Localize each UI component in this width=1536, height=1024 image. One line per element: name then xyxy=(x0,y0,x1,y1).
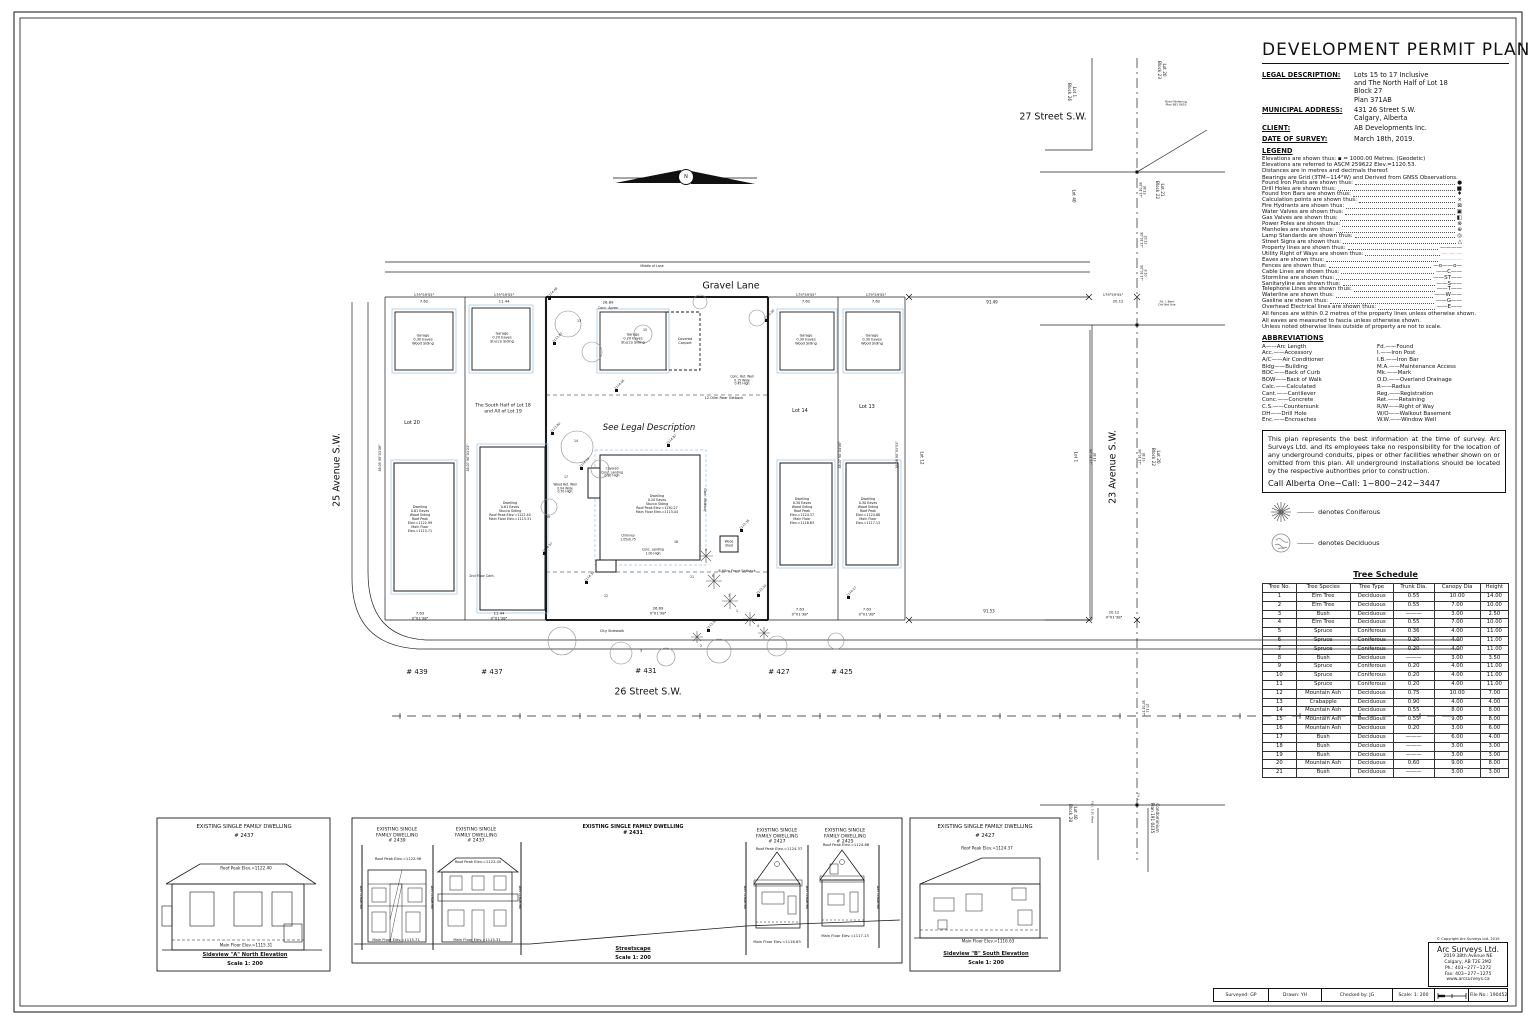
plan-label: 1113.82 xyxy=(550,422,562,434)
tree-schedule-cell: 9.00 xyxy=(1434,760,1480,769)
tree-schedule-cell: 0.20 xyxy=(1393,645,1434,654)
tree-schedule-cell: Bush xyxy=(1296,610,1350,619)
tree-schedule-cell: 12 xyxy=(1263,689,1297,698)
tree-schedule-cell: 0.55 xyxy=(1393,601,1434,610)
tree-schedule-heading: Tree Schedule xyxy=(1262,569,1509,579)
tree-schedule-cell: Mountain Ash xyxy=(1296,707,1350,716)
plan-label: 1114.57 xyxy=(542,542,554,554)
tree-schedule-cell: 4 xyxy=(1263,619,1297,628)
plan-label: Main Floor Elev.=1115.71 xyxy=(372,938,419,942)
tree-schedule-cell: 9 xyxy=(1263,663,1297,672)
tree-schedule-cell: Deciduous xyxy=(1350,725,1393,734)
tree-schedule-cell: 3.00 xyxy=(1480,751,1508,760)
plan-label: Roof Peak Elev.=1122.40 xyxy=(455,860,501,864)
plan-label: 1 xyxy=(736,610,738,614)
tree-schedule-column-header: Tree No. xyxy=(1263,584,1297,593)
legend-note: Unless noted otherwise lines outside of … xyxy=(1262,324,1509,330)
company-name: Arc Surveys Ltd. xyxy=(1429,945,1507,954)
tree-schedule-cell: Coniferous xyxy=(1350,636,1393,645)
plan-label: See Legal Description xyxy=(603,423,696,433)
plan-label: Roof Peak Elev.=1122.40 xyxy=(220,867,271,872)
date-of-survey-label: DATE OF SURVEY: xyxy=(1262,135,1354,143)
tree-schedule-cell: 4.00 xyxy=(1434,636,1480,645)
tree-schedule-cell: Deciduous xyxy=(1350,689,1393,698)
tree-schedule-column-header: Trunk Dia. xyxy=(1393,584,1434,593)
tree-schedule-cell: 3.00 xyxy=(1434,654,1480,663)
plan-label: Lot 20 Block 22 xyxy=(1151,448,1161,466)
plan-label: # 431 xyxy=(635,667,656,675)
plan-label: 8.10 90°01'17" xyxy=(1139,265,1146,281)
plan-label: 1114.87 xyxy=(666,434,678,446)
plan-label: EXISTING SINGLE FAMILY DWELLING # 2437 xyxy=(455,828,497,845)
legend-notes: All fences are within 0.2 metres of the … xyxy=(1262,311,1509,330)
tree-schedule-column-header: Tree Type xyxy=(1350,584,1393,593)
tree-schedule-cell: 3.00 xyxy=(1434,742,1480,751)
tree-schedule-cell: 11.00 xyxy=(1480,663,1508,672)
municipal-address-value: 431 26 Street S.W. Calgary, Alberta xyxy=(1354,106,1415,122)
plan-label: Main Floor Elev.=1115.31 xyxy=(453,938,500,942)
tree-schedule-cell: Bush xyxy=(1296,654,1350,663)
plan-label: 38.07 90°03'23" xyxy=(467,444,471,471)
plan-label: 38.07 90°04'06" xyxy=(839,441,843,468)
plan-label: Main Floor Elev.=1116.63 xyxy=(753,940,800,944)
tree-schedule-row: 21BushDeciduous———3.003.00 xyxy=(1263,769,1509,778)
tree-schedule-cell: 7.00 xyxy=(1434,619,1480,628)
plan-label: 7.62 xyxy=(420,300,428,305)
disclaimer-box: This plan represents the best informatio… xyxy=(1262,430,1506,493)
plan-label: Chimney 1.05x0.75 xyxy=(620,534,636,541)
plan-label: 7.63 0°01'38" xyxy=(859,607,876,616)
tree-schedule-cell: 3.00 xyxy=(1434,751,1480,760)
plan-label: # 437 xyxy=(481,668,502,676)
plan-label: 7 xyxy=(728,595,730,599)
file-number-cell: File No.: 190452 xyxy=(1469,989,1508,1001)
tree-schedule-row: 12Mountain AshDeciduous0.7510.007.00 xyxy=(1263,689,1509,698)
scale-bar-icon xyxy=(1437,991,1467,999)
plan-label: 38.05 90°03'06" xyxy=(379,444,383,471)
tree-schedule-cell: 3.00 xyxy=(1434,725,1480,734)
plan-label: 179°59'55" xyxy=(414,293,434,297)
plan-label: Main Floor Elev.=1115.31 xyxy=(220,944,273,949)
tree-schedule-cell: 7.00 xyxy=(1434,601,1480,610)
tree-schedule-cell: 21 xyxy=(1263,769,1297,778)
plan-label: EXISTING SINGLE FAMILY DWELLING # 2431 xyxy=(582,824,683,836)
elevation-a-title: EXISTING SINGLE FAMILY DWELLING xyxy=(196,824,291,830)
tree-schedule-table: Tree No.Tree SpeciesTree TypeTrunk Dia.C… xyxy=(1262,583,1509,778)
plan-label: Garage 0.30 Eaves Wood Siding xyxy=(795,334,817,347)
footer-bar: Surveyed: GP Drawn: YH Checked by: JG Sc… xyxy=(1213,988,1508,1002)
tree-schedule-cell: 4.00 xyxy=(1480,733,1508,742)
tree-schedule-row: 10SpruceConiferous0.204.0011.00 xyxy=(1263,672,1509,681)
plan-label: 21 xyxy=(690,576,694,580)
scale-cell: Scale: 1: 200 xyxy=(1393,989,1435,1001)
plan-label: Conc. Apron xyxy=(598,307,618,311)
plan-label: Garage 0.20 Eaves Stucco Siding xyxy=(621,333,645,346)
plan-label: 91.53 xyxy=(983,610,994,615)
plan-label: # 425 xyxy=(831,668,852,676)
plan-label: 7.62 xyxy=(872,300,880,305)
tree-schedule-cell: 0.55 xyxy=(1393,716,1434,725)
tree-schedule-cell: 6 xyxy=(1263,636,1297,645)
date-of-survey-row: DATE OF SURVEY: March 18th, 2019. xyxy=(1262,135,1509,143)
plan-label: 7.62 xyxy=(802,300,810,305)
property-line-label: PROPERTY LINE xyxy=(360,885,364,908)
plan-label: 3 xyxy=(640,650,642,654)
company-website: www.arcsurveys.ca xyxy=(1429,977,1507,983)
abbreviation-entry: R/W——Right of Way xyxy=(1377,404,1492,411)
plan-label: 1114.09 xyxy=(579,457,591,469)
plan-label: 27 Street S.W. xyxy=(1019,111,1086,122)
tree-schedule-cell: 3.50 xyxy=(1480,654,1508,663)
tree-schedule-cell: Coniferous xyxy=(1350,663,1393,672)
tree-schedule-cell: 18 xyxy=(1263,742,1297,751)
plan-label: 1114.06 xyxy=(614,379,626,391)
client-row: CLIENT: AB Developments Inc. xyxy=(1262,124,1509,132)
tree-schedule-cell: ——— xyxy=(1393,733,1434,742)
tree-schedule-row: 4Elm TreeDeciduous0.557.0010.00 xyxy=(1263,619,1509,628)
plan-label: Lot 1 xyxy=(1073,452,1078,462)
tree-schedule-cell: 4.00 xyxy=(1434,698,1480,707)
plan-label: Lot 40 Block 28 xyxy=(1068,804,1078,822)
legend-leader xyxy=(1355,237,1456,238)
plan-label: Roof Peak Elev.=1122.96 xyxy=(375,857,421,861)
legend-leader xyxy=(1342,226,1455,227)
plan-label: 1115.53 xyxy=(756,584,768,596)
client-value: AB Developments Inc. xyxy=(1354,124,1427,132)
tree-schedule-cell: ——— xyxy=(1393,751,1434,760)
tree-schedule-cell: Mountain Ash xyxy=(1296,689,1350,698)
tree-schedule-cell: Deciduous xyxy=(1350,733,1393,742)
legend-leader xyxy=(1326,261,1438,262)
tree-schedule-cell: 0.55 xyxy=(1393,707,1434,716)
tree-schedule-cell: Deciduous xyxy=(1350,716,1393,725)
drawn-cell: Drawn: YH xyxy=(1269,989,1322,1001)
abbreviations-heading: ABBREVIATIONS xyxy=(1262,334,1509,342)
legend-leader xyxy=(1355,184,1455,185)
deciduous-legend: ——— denotes Deciduous xyxy=(1270,531,1509,555)
tree-schedule-cell: 4.00 xyxy=(1434,681,1480,690)
legend-leader xyxy=(1329,267,1432,268)
tree-schedule-cell: 3.00 xyxy=(1480,769,1508,778)
plan-label: Lot 20 Block 23 xyxy=(1157,61,1167,79)
checked-cell: Checked by: JG xyxy=(1322,989,1393,1001)
plan-label: 11.44 xyxy=(499,300,510,305)
tree-schedule-cell: 8.00 xyxy=(1480,760,1508,769)
tree-schedule-row: 8BushDeciduous———3.003.50 xyxy=(1263,654,1509,663)
abbreviation-entry: I.B.——Iron Bar xyxy=(1377,357,1492,364)
tree-schedule-cell: Bush xyxy=(1296,742,1350,751)
plan-label: 5 xyxy=(705,549,707,553)
tree-schedule-cell: Spruce xyxy=(1296,672,1350,681)
scale-bar xyxy=(1435,989,1469,1001)
tree-schedule-cell: 0.36 xyxy=(1393,628,1434,637)
tree-schedule-cell: Deciduous xyxy=(1350,592,1393,601)
plan-label: 38.13 90°01'17" xyxy=(1138,182,1145,198)
abbreviations: A——Arc LengthAcc.——AccessoryA/C——Air Con… xyxy=(1262,344,1492,424)
tree-schedule-cell: 2.50 xyxy=(1480,610,1508,619)
tree-schedule-cell: 0.75 xyxy=(1393,689,1434,698)
plan-label: Conc. Ret. Wall 0.15 Wide 0.45 High xyxy=(730,375,753,386)
tree-schedule-cell: Deciduous xyxy=(1350,760,1393,769)
plan-label: 20.12 90°01'17" xyxy=(1139,232,1146,248)
north-arrow-label: N xyxy=(684,174,688,180)
plan-label: Conc. Walkway xyxy=(702,488,706,511)
plan-label: Garage 0.20 Eaves Stucco Siding xyxy=(490,332,514,345)
abbreviation-entry: Cant.——Cantilever xyxy=(1262,391,1377,398)
abbreviation-entry: Enc.——Encroaches xyxy=(1262,417,1377,424)
deciduous-legend-label: denotes Deciduous xyxy=(1318,539,1379,547)
plan-label: Dwelling 0.30 Eaves Wood Siding Roof Pea… xyxy=(790,498,814,526)
abbreviation-entry: Fd.——Found xyxy=(1377,344,1492,351)
property-line-label: PROPERTY LINE xyxy=(744,885,748,908)
tree-schedule-cell: Mountain Ash xyxy=(1296,716,1350,725)
legend-leader xyxy=(1343,285,1435,286)
plan-label: 19 xyxy=(546,516,550,520)
plan-label: # 439 xyxy=(406,668,427,676)
tree-schedule-cell: 11.00 xyxy=(1480,628,1508,637)
plan-label: Lot 20 xyxy=(404,420,420,426)
plan-label: 179°59'55" xyxy=(1103,293,1123,297)
plan-label: Lot 12 xyxy=(919,451,924,464)
abbreviation-entry: O.D.——Overland Drainage xyxy=(1377,377,1492,384)
tree-schedule-row: 16Mountain AshDeciduous0.203.006.00 xyxy=(1263,725,1509,734)
property-line-label: PROPERTY LINE xyxy=(877,885,881,908)
tree-schedule-cell: 8.00 xyxy=(1480,716,1508,725)
legend-leader xyxy=(1341,273,1434,274)
abbreviation-entry: I.——Iron Post xyxy=(1377,350,1492,357)
legend-leader xyxy=(1346,208,1455,209)
title-block-panel: DEVELOPMENT PERMIT PLAN LEGAL DESCRIPTIO… xyxy=(1262,40,1509,778)
plan-label: Fd. I. xyxy=(1136,794,1139,801)
tree-schedule-cell: 6.00 xyxy=(1434,733,1480,742)
plan-label: 179°59'55" xyxy=(796,293,816,297)
legend-leader xyxy=(1345,214,1454,215)
tree-schedule-row: 9SpruceConiferous0.204.0011.00 xyxy=(1263,663,1509,672)
tree-schedule-cell: Coniferous xyxy=(1350,645,1393,654)
tree-schedule-cell: Deciduous xyxy=(1350,601,1393,610)
tree-schedule-cell: 20 xyxy=(1263,760,1297,769)
plan-label: 12 xyxy=(604,595,608,599)
tree-schedule-cell: 15 xyxy=(1263,716,1297,725)
abbreviation-entry: A/C——Air Conditioner xyxy=(1262,357,1377,364)
deciduous-tree-icon xyxy=(1270,532,1292,554)
plan-label: Lot 40 xyxy=(1071,189,1076,202)
plan-label: 91.49 xyxy=(986,301,997,306)
tree-schedule-cell: ——— xyxy=(1393,610,1434,619)
disclaimer-text: This plan represents the best informatio… xyxy=(1268,435,1500,475)
legend-items: Found Iron Posts are shown thus:●Drill H… xyxy=(1262,181,1509,312)
coniferous-legend-label: denotes Coniferous xyxy=(1318,508,1380,516)
tree-schedule-cell: ——— xyxy=(1393,654,1434,663)
legend-heading: LEGEND xyxy=(1262,147,1509,155)
plan-label: Middle of Lane xyxy=(640,265,663,269)
plan-label: 2nd Floor Cant. xyxy=(469,575,494,579)
legend-leader xyxy=(1336,297,1433,298)
tree-schedule-row: 1Elm TreeDeciduous0.5510.0014.00 xyxy=(1263,592,1509,601)
legend-note: All fences are within 0.2 metres of the … xyxy=(1262,311,1509,317)
tree-schedule-cell: 17 xyxy=(1263,733,1297,742)
legend-leader xyxy=(1343,243,1456,244)
legend-leader xyxy=(1365,255,1440,256)
tree-schedule-cell: 0.20 xyxy=(1393,636,1434,645)
abbreviation-entry: DH——Drill Hole xyxy=(1262,411,1377,418)
tree-schedule-cell: 11 xyxy=(1263,681,1297,690)
legend-leader xyxy=(1353,196,1455,197)
tree-schedule-cell: 11.00 xyxy=(1480,681,1508,690)
plan-label: 12.00m Rear Setback xyxy=(705,396,744,400)
abbreviation-entry: Calc.——Calculated xyxy=(1262,384,1377,391)
legend-leader xyxy=(1336,279,1431,280)
plan-label: Lot 13 xyxy=(859,404,875,410)
abbreviation-entry: Bldg——Building xyxy=(1262,364,1377,371)
elevation-b-title: EXISTING SINGLE FAMILY DWELLING xyxy=(937,824,1032,830)
abbreviation-entry: W/O——Walkout Basement xyxy=(1377,411,1492,418)
tree-schedule-cell: 8.00 xyxy=(1480,707,1508,716)
tree-schedule-row: 3BushDeciduous———3.002.50 xyxy=(1263,610,1509,619)
tree-schedule-cell: Spruce xyxy=(1296,628,1350,637)
plan-label: Roof Peak Elev.=1124.37 xyxy=(961,847,1012,852)
tree-schedule-column-header: Height xyxy=(1480,584,1508,593)
legend-leader: ——— xyxy=(1297,508,1313,516)
tree-schedule-cell: Mountain Ash xyxy=(1296,760,1350,769)
tree-schedule-cell: 2 xyxy=(1263,601,1297,610)
abbreviation-entry: R——Radius xyxy=(1377,384,1492,391)
tree-schedule-cell: Elm Tree xyxy=(1296,592,1350,601)
tree-schedule-cell: Deciduous xyxy=(1350,707,1393,716)
plan-label: 179°59'55" xyxy=(866,293,886,297)
date-of-survey-value: March 18th, 2019. xyxy=(1354,135,1414,143)
abbreviation-entry: M.A.——Maintenance Access xyxy=(1377,364,1492,371)
tree-schedule-cell: 11.00 xyxy=(1480,636,1508,645)
property-line-label: PROPERTY LINE xyxy=(519,885,523,908)
plan-label: The South Half of Lot 18 and All of Lot … xyxy=(475,404,531,415)
plan-label: 2 xyxy=(700,645,702,649)
tree-schedule-cell: 4.00 xyxy=(1434,628,1480,637)
plan-label: 38.08 90°03'53" xyxy=(896,441,900,468)
tree-schedule-cell: 10.00 xyxy=(1480,601,1508,610)
plan-label: 26.89 xyxy=(603,301,614,306)
plan-label: Lot 14 xyxy=(792,408,808,414)
legend-leader xyxy=(1378,309,1434,310)
legend-leader xyxy=(1340,220,1455,221)
tree-schedule-cell: 4.00 xyxy=(1480,698,1508,707)
tree-schedule-cell: 3 xyxy=(1263,610,1297,619)
plan-label: 1115.90 xyxy=(764,309,776,321)
plan-label: 1113.87 xyxy=(552,332,564,344)
tree-schedule-row: 5SpruceConiferous0.364.0011.00 xyxy=(1263,628,1509,637)
tree-schedule-row: 18BushDeciduous———3.003.00 xyxy=(1263,742,1509,751)
tree-schedule-cell: 11.00 xyxy=(1480,645,1508,654)
plan-label: 15 xyxy=(643,329,647,333)
tree-schedule-cell: 13 xyxy=(1263,698,1297,707)
tree-schedule-cell: Coniferous xyxy=(1350,672,1393,681)
legend-leader xyxy=(1336,232,1455,233)
plan-label: Fd. I. 0.10 West xyxy=(1090,801,1093,823)
sheet-title: DEVELOPMENT PERMIT PLAN xyxy=(1262,40,1509,64)
plan-label: Conc. Landing 1.00 High xyxy=(642,548,664,555)
tree-schedule-cell: Deciduous xyxy=(1350,619,1393,628)
plan-label: Condominium Plan 191 0435 xyxy=(1150,803,1160,833)
plan-label: 1115.36 xyxy=(739,519,751,531)
coniferous-legend: ——— denotes Coniferous xyxy=(1270,500,1509,524)
property-line-label: PROPERTY LINE xyxy=(431,885,435,908)
abbreviation-entry: W.W.——Window Well xyxy=(1377,417,1492,424)
abbreviation-entry: BOW——Back of Walk xyxy=(1262,377,1377,384)
tree-schedule-cell: 8 xyxy=(1263,654,1297,663)
legend-leader xyxy=(1338,190,1455,191)
plan-label: 20.12 0°01'38" xyxy=(1106,610,1123,619)
company-box: Arc Surveys Ltd. 2019 38th Avenue NE Cal… xyxy=(1428,942,1508,987)
tree-schedule-row: 6SpruceConiferous0.204.0011.00 xyxy=(1263,636,1509,645)
tree-schedule-cell: 14 xyxy=(1263,707,1297,716)
tree-schedule-column-header: Canopy Dia xyxy=(1434,584,1480,593)
tree-schedule-cell: 0.90 xyxy=(1393,698,1434,707)
plan-label: Covered Conc. Landing 0.80 High xyxy=(601,467,623,478)
plan-label: Wood Shed xyxy=(725,540,734,547)
municipal-address-label: MUNICIPAL ADDRESS: xyxy=(1262,106,1354,122)
plan-label: 1115.50 xyxy=(706,619,718,631)
tree-schedule-cell: 0.55 xyxy=(1393,592,1434,601)
plan-label: Dwelling 0.61 Eaves Wood Siding Roof Pea… xyxy=(408,506,432,534)
tree-schedule-cell: Deciduous xyxy=(1350,610,1393,619)
tree-schedule-cell: Bush xyxy=(1296,769,1350,778)
plan-label: 18 xyxy=(674,541,678,545)
legend-leader xyxy=(1359,202,1455,203)
legal-description-value: Lots 15 to 17 Inclusive and The North Ha… xyxy=(1354,71,1448,104)
plan-label: 13 xyxy=(577,320,581,324)
plan-label: 25 Avenue S.W. xyxy=(331,433,342,507)
tree-schedule-cell: 10.00 xyxy=(1434,689,1480,698)
plan-label: Streetscape xyxy=(615,946,650,952)
streetscape-title: EXISTING SINGLE FAMILY DWELLING # 2439 xyxy=(376,828,418,845)
plan-label: # 427 xyxy=(768,668,789,676)
client-label: CLIENT: xyxy=(1262,124,1354,132)
tree-schedule-cell: Deciduous xyxy=(1350,742,1393,751)
tree-schedule-cell: Coniferous xyxy=(1350,681,1393,690)
plan-label: 11.44 0°01'38" xyxy=(491,611,508,620)
coniferous-tree-icon xyxy=(1270,501,1292,523)
tree-schedule-header-row: Tree No.Tree SpeciesTree TypeTrunk Dia.C… xyxy=(1263,584,1509,593)
abbreviation-entry: Ret.——Retaining xyxy=(1377,397,1492,404)
plan-label: Lot 21 Block 22 xyxy=(1155,181,1165,199)
plan-label: Scale 1: 200 xyxy=(227,961,263,967)
plan-label: Scale 1: 200 xyxy=(968,960,1004,966)
abbreviation-entry: Conc.——Concrete xyxy=(1262,397,1377,404)
tree-schedule-cell: 5 xyxy=(1263,628,1297,637)
tree-schedule-cell: 4.00 xyxy=(1434,645,1480,654)
plan-label: 7.63 0°01'38" xyxy=(412,611,429,620)
plan-label: Roof Peak Elev.=1124.37 xyxy=(756,847,802,851)
tree-schedule-cell: Spruce xyxy=(1296,681,1350,690)
tree-schedule-row: 2Elm TreeDeciduous0.557.0010.00 xyxy=(1263,601,1509,610)
property-line-label: PROPERTY LINE xyxy=(806,885,810,908)
tree-schedule-cell: 11.00 xyxy=(1480,672,1508,681)
plan-label: Wood Ret. Wall 0.04 Wide 0.70 High xyxy=(553,483,576,494)
abbreviation-entry: Acc.——Accessory xyxy=(1262,350,1377,357)
tree-schedule-cell: 0.60 xyxy=(1393,760,1434,769)
tree-schedule-row: 7SpruceConiferous0.204.0011.00 xyxy=(1263,645,1509,654)
tree-schedule-row: 15Mountain AshDeciduous0.559.008.00 xyxy=(1263,716,1509,725)
alberta-one-call: Call Alberta One−Call: 1−800−242−3447 xyxy=(1268,478,1500,488)
plan-label: 26 Street S.W. xyxy=(614,686,681,697)
tree-schedule-cell: Bush xyxy=(1296,751,1350,760)
plan-label: 38.13 90°01'17" xyxy=(1088,449,1095,465)
tree-schedule-cell: 7.00 xyxy=(1480,689,1508,698)
tree-schedule-row: 11SpruceConiferous0.204.0011.00 xyxy=(1263,681,1509,690)
tree-schedule-cell: 14.00 xyxy=(1480,592,1508,601)
tree-schedule-cell: Spruce xyxy=(1296,636,1350,645)
tree-schedule-cell: 6.00 xyxy=(1480,725,1508,734)
